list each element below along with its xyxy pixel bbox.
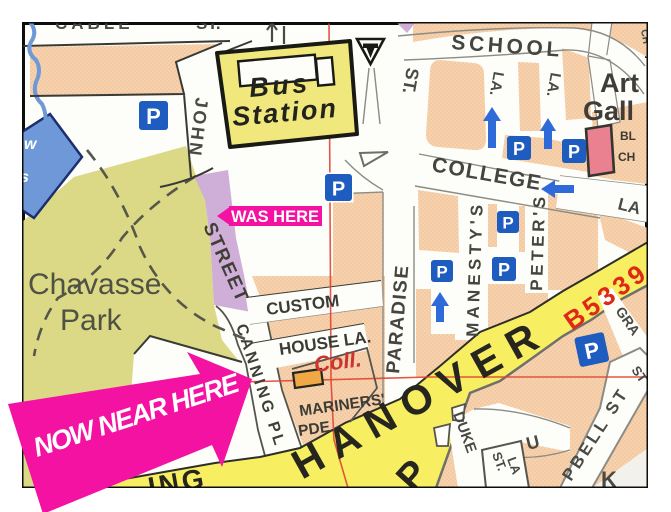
svg-text:K: K: [601, 467, 617, 492]
svg-text:WAS HERE: WAS HERE: [231, 208, 319, 226]
svg-text:Art: Art: [600, 68, 639, 98]
svg-text:s: s: [20, 169, 29, 186]
svg-text:Gall: Gall: [583, 96, 634, 126]
svg-text:CH: CH: [618, 150, 635, 164]
svg-text:P: P: [498, 260, 510, 280]
svg-text:Park: Park: [60, 304, 123, 337]
svg-text:BL: BL: [620, 129, 636, 143]
svg-text:P: P: [568, 142, 580, 162]
svg-text:P: P: [332, 179, 345, 201]
svg-text:P: P: [146, 104, 161, 129]
svg-text:ST.: ST.: [196, 14, 221, 33]
svg-text:P: P: [513, 139, 525, 159]
svg-text:CABLE: CABLE: [55, 14, 134, 33]
svg-text:w: w: [24, 136, 38, 153]
svg-text:P: P: [436, 263, 447, 282]
svg-text:P: P: [502, 214, 513, 233]
svg-text:Chavasse: Chavasse: [28, 268, 161, 301]
